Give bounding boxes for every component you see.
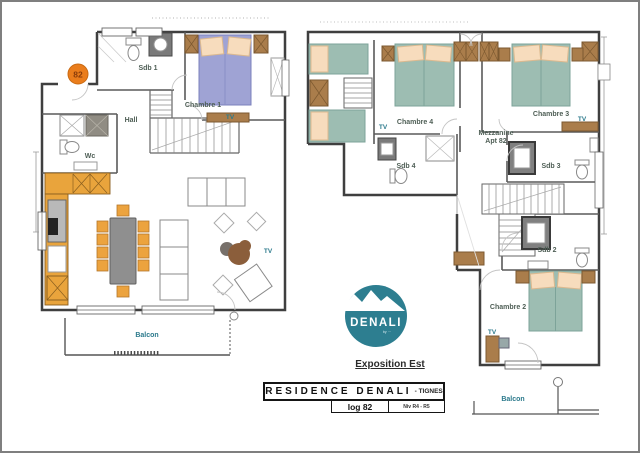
sdb4-fixtures xyxy=(378,136,454,184)
pillow xyxy=(397,45,423,62)
title-block: RESIDENCE DENALI - TIGNES log 82 Niv R4 … xyxy=(263,382,445,413)
room-label-chambre4: Chambre 4 xyxy=(397,119,433,126)
shower-icon xyxy=(98,33,126,62)
toilet-icon xyxy=(390,169,395,183)
window xyxy=(282,60,289,96)
pillow xyxy=(311,46,328,72)
nightstand xyxy=(499,48,510,61)
room-label-chambre2: Chambre 2 xyxy=(490,304,526,311)
tv-label-living: TV xyxy=(264,248,273,255)
pillow xyxy=(200,37,224,56)
room-label-chambre1: Chambre 1 xyxy=(185,102,221,109)
title-block-row2: log 82 Niv R4 - R5 xyxy=(331,401,445,413)
wc-cabinet xyxy=(74,162,97,170)
tv-label-chambre1: TV xyxy=(226,114,235,121)
window xyxy=(595,152,603,208)
kitchen-sink xyxy=(48,246,66,272)
pillow xyxy=(425,45,451,62)
alcove-beds xyxy=(309,44,372,142)
tv-label-chambre2: TV xyxy=(488,329,497,336)
sdb2-fixtures xyxy=(522,217,589,269)
dining-area xyxy=(97,205,149,297)
pouf xyxy=(247,212,265,230)
apartment-badge: 82 xyxy=(68,64,88,84)
unit-number: log 82 xyxy=(332,401,389,412)
mezzanine-label-line1: Mezzanine xyxy=(478,130,513,137)
pouf xyxy=(214,213,234,233)
logo-wordmark: DENALI xyxy=(350,317,402,329)
living-area xyxy=(160,178,272,302)
room-label-hall: Hall xyxy=(125,117,138,124)
hall-closets xyxy=(60,115,108,136)
floor2-balcony xyxy=(472,378,599,415)
bench xyxy=(454,252,484,265)
room-label-sdb1: Sdb 1 xyxy=(138,65,157,72)
sofa-horizontal xyxy=(188,178,245,206)
toilet-icon xyxy=(575,248,589,253)
pillow xyxy=(541,45,568,62)
armchair xyxy=(235,264,273,302)
pillow xyxy=(513,45,540,62)
headboard-shelf xyxy=(516,271,529,283)
pillow xyxy=(530,272,554,289)
washbasin xyxy=(528,261,548,269)
headboard-shelf xyxy=(582,271,595,283)
exposition-label: Exposition Est xyxy=(340,359,440,370)
balcony-post xyxy=(554,378,563,387)
room-label-chambre3: Chambre 3 xyxy=(533,111,569,118)
room-label-sdb2: Sdb 2 xyxy=(537,247,556,254)
pillow xyxy=(227,37,251,56)
dining-table xyxy=(110,218,136,284)
toilet-icon xyxy=(126,38,141,45)
nightstand xyxy=(572,48,583,61)
balcony-label-floor2: Balcon xyxy=(501,396,524,403)
floor1-plan: 82 Sdb 1 Chambre 1 Hall Wc TV TV Balcon xyxy=(33,18,289,355)
kitchen-counter-top xyxy=(45,173,110,194)
residence-location: - TIGNES xyxy=(415,388,443,395)
tv-dresser xyxy=(562,122,598,131)
room-label-wc: Wc xyxy=(85,153,96,160)
room-label-sdb3: Sdb 3 xyxy=(541,163,560,170)
badge-number: 82 xyxy=(73,70,83,80)
floor2-plan: Chambre 4 TV Chambre 3 TV Mezzanine Apt … xyxy=(308,22,610,414)
balcony-label-floor1: Balcon xyxy=(135,332,158,339)
sofa-vertical xyxy=(160,220,188,300)
pillow xyxy=(557,272,581,289)
washbasin xyxy=(590,138,598,152)
tv-set xyxy=(499,338,509,348)
room-label-sdb4: Sdb 4 xyxy=(396,163,415,170)
toilet-icon xyxy=(575,160,589,165)
unit-level: Niv R4 - R5 xyxy=(389,401,444,412)
residence-name: RESIDENCE DENALI xyxy=(265,386,411,397)
floorplan-page: 82 Sdb 1 Chambre 1 Hall Wc TV TV Balcon xyxy=(0,0,640,453)
balcony-post xyxy=(230,312,238,320)
denali-logo: DENALI by ··· xyxy=(340,285,407,347)
title-block-row1: RESIDENCE DENALI - TIGNES xyxy=(263,382,445,401)
appliance-door xyxy=(48,218,58,235)
tv-dresser xyxy=(486,336,499,362)
pillow xyxy=(311,112,328,140)
mezzanine-label-line2: Apt 82 xyxy=(485,138,507,145)
sdb3-fixtures xyxy=(509,138,598,179)
tv-label-chambre3: TV xyxy=(578,116,587,123)
pouf xyxy=(213,275,233,295)
tv-label-chambre4: TV xyxy=(379,124,388,131)
sdb1-fixtures xyxy=(98,33,172,62)
logo-tagline: by ··· xyxy=(383,330,391,334)
chambre4-furniture xyxy=(382,44,454,106)
